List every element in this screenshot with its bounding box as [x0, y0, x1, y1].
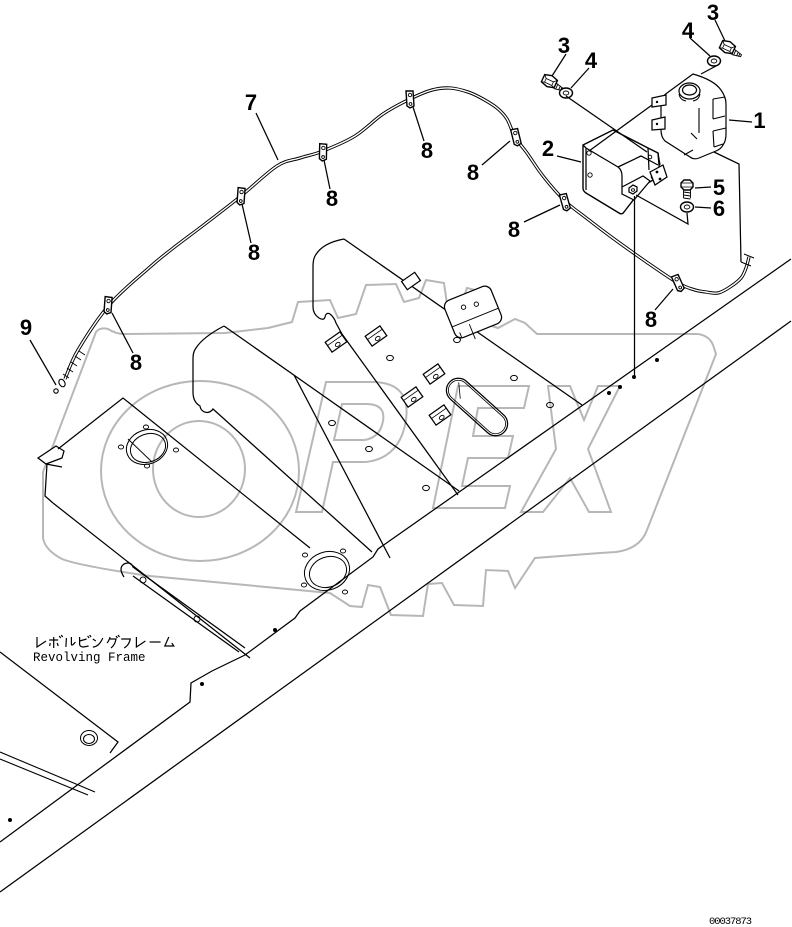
svg-text:8: 8 — [326, 186, 338, 211]
svg-text:8: 8 — [467, 160, 479, 185]
svg-text:Revolving Frame: Revolving Frame — [33, 651, 146, 665]
svg-text:8: 8 — [421, 138, 433, 163]
svg-text:8: 8 — [645, 307, 657, 332]
svg-text:9: 9 — [20, 315, 32, 340]
svg-text:6: 6 — [713, 196, 725, 221]
svg-text:2: 2 — [542, 136, 554, 161]
svg-text:4: 4 — [585, 48, 598, 73]
svg-text:3: 3 — [558, 33, 570, 58]
svg-text:4: 4 — [682, 18, 695, 43]
svg-text:00037873: 00037873 — [709, 916, 752, 927]
svg-text:8: 8 — [508, 217, 520, 242]
svg-text:8: 8 — [248, 240, 260, 265]
svg-text:8: 8 — [130, 350, 142, 375]
svg-text:1: 1 — [753, 108, 765, 133]
svg-text:3: 3 — [707, 0, 719, 25]
svg-text:7: 7 — [245, 90, 257, 115]
